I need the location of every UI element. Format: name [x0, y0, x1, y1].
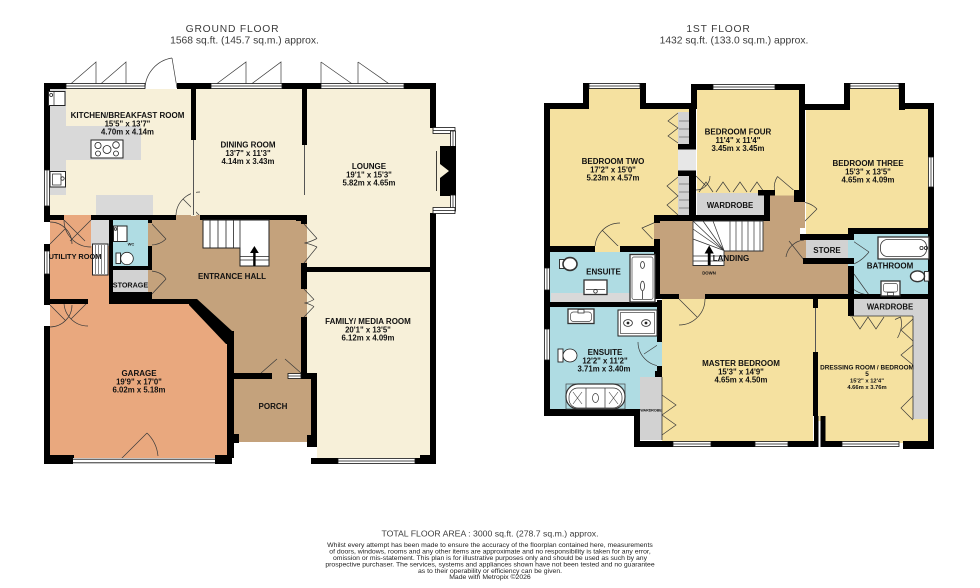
svg-text:LANDING: LANDING — [713, 254, 749, 263]
svg-text:1ST FLOOR: 1ST FLOOR — [686, 24, 750, 35]
svg-text:4.65m x 4.50m: 4.65m x 4.50m — [715, 376, 768, 385]
svg-text:5: 5 — [865, 371, 869, 378]
svg-text:1568 sq.ft. (145.7 sq.m.) appr: 1568 sq.ft. (145.7 sq.m.) approx. — [170, 36, 319, 47]
svg-text:3.45m x 3.45m: 3.45m x 3.45m — [712, 144, 765, 153]
svg-text:WARDROBE: WARDROBE — [707, 201, 753, 210]
svg-text:PORCH: PORCH — [259, 402, 288, 411]
svg-text:4.14m x 3.43m: 4.14m x 3.43m — [222, 157, 275, 166]
svg-text:BATHROOM: BATHROOM — [867, 262, 914, 271]
svg-text:DOWN: DOWN — [702, 271, 716, 276]
svg-text:STORE: STORE — [813, 246, 841, 255]
svg-text:ENTRANCE HALL: ENTRANCE HALL — [198, 272, 266, 281]
svg-text:5.23m x 4.57m: 5.23m x 4.57m — [587, 174, 640, 183]
svg-text:4.70m x 4.14m: 4.70m x 4.14m — [101, 128, 154, 137]
svg-text:6.02m x 5.18m: 6.02m x 5.18m — [113, 386, 166, 395]
svg-text:STORAGE: STORAGE — [113, 281, 149, 290]
svg-text:WC: WC — [128, 242, 135, 247]
svg-text:GROUND FLOOR: GROUND FLOOR — [186, 24, 280, 35]
svg-text:TOTAL FLOOR AREA : 3000 sq.ft.: TOTAL FLOOR AREA : 3000 sq.ft. (278.7 sq… — [381, 529, 598, 539]
svg-text:3.71m x 3.40m: 3.71m x 3.40m — [578, 365, 631, 374]
svg-text:4.65m x 4.09m: 4.65m x 4.09m — [842, 176, 895, 185]
svg-text:6.12m x 4.09m: 6.12m x 4.09m — [342, 334, 395, 343]
svg-text:15'2" x 12'4": 15'2" x 12'4" — [850, 379, 884, 385]
svg-text:5.82m x 4.65m: 5.82m x 4.65m — [343, 179, 396, 188]
svg-text:WARDROBE: WARDROBE — [867, 303, 913, 312]
svg-text:4.66m x 3.76m: 4.66m x 3.76m — [847, 385, 886, 391]
svg-text:WARDROBE: WARDROBE — [640, 409, 662, 413]
svg-text:Made with Metropix ©2026: Made with Metropix ©2026 — [449, 573, 531, 581]
svg-text:UTILITY ROOM: UTILITY ROOM — [49, 252, 102, 261]
svg-text:ENSUITE: ENSUITE — [586, 268, 621, 277]
svg-text:1432 sq.ft. (133.0 sq.m.) appr: 1432 sq.ft. (133.0 sq.m.) approx. — [660, 36, 809, 47]
